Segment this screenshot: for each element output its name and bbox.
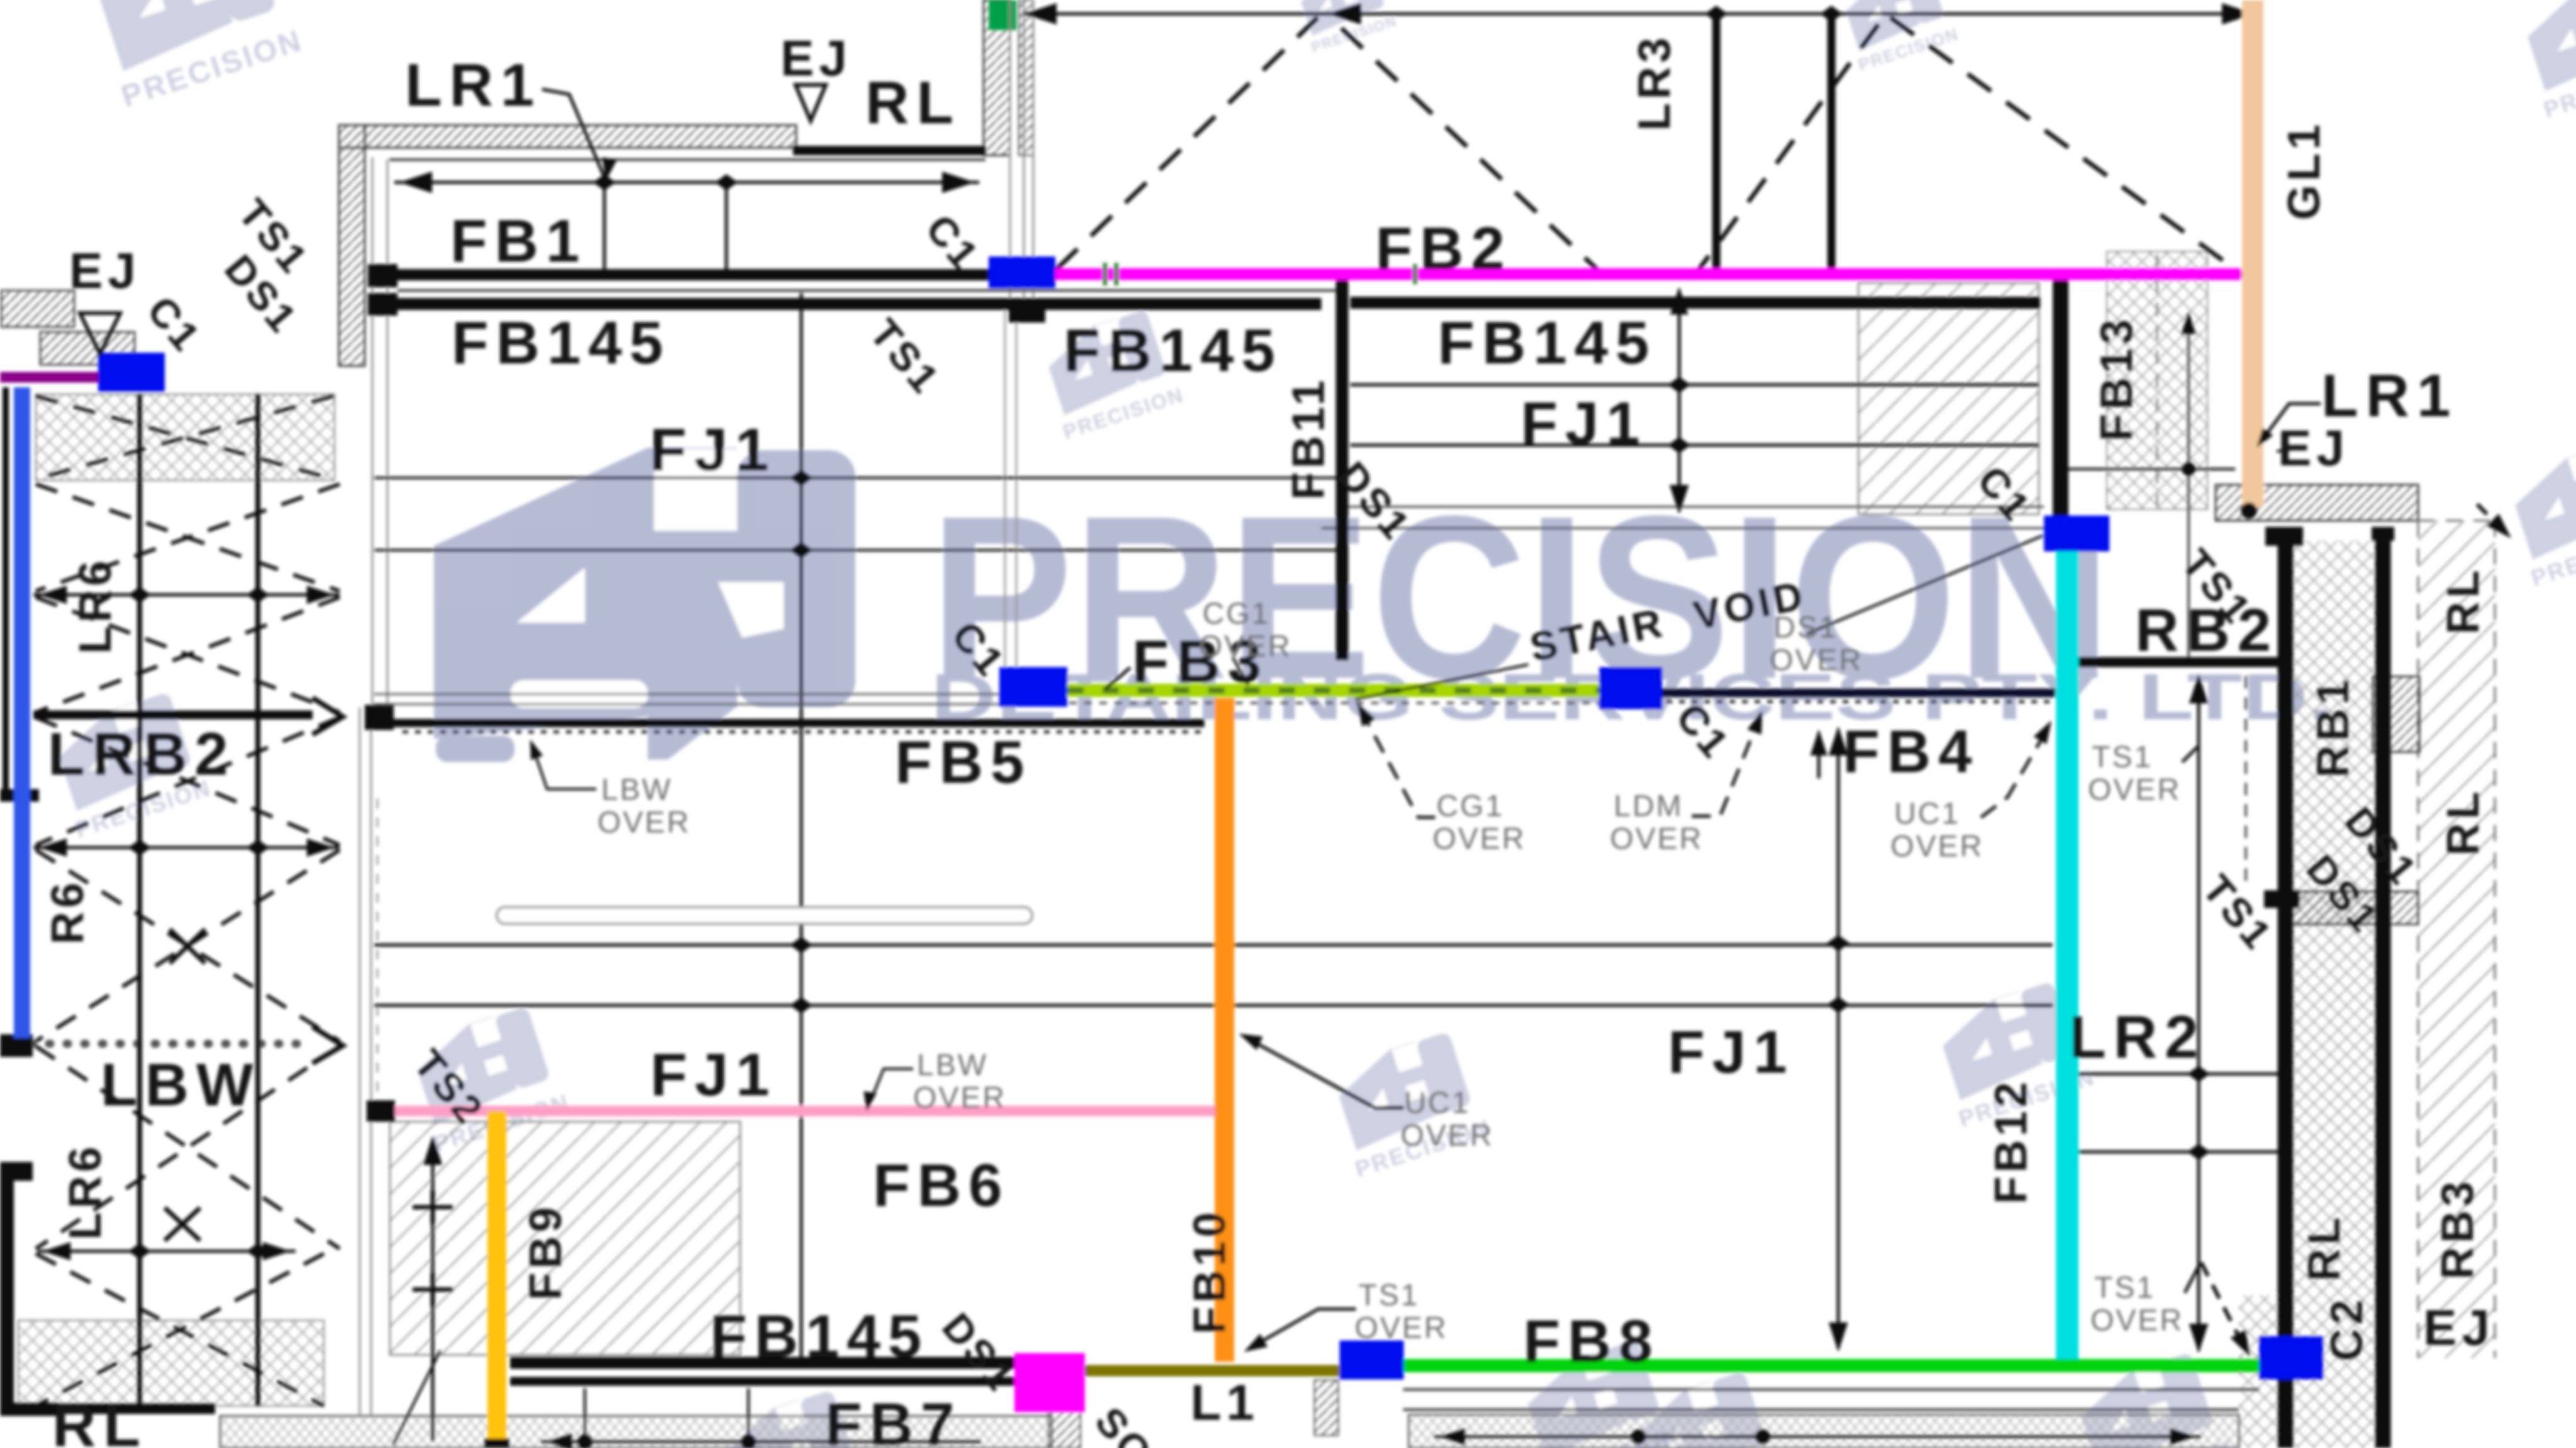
svg-text:CG1: CG1 bbox=[1436, 790, 1504, 823]
svg-text:OVER: OVER bbox=[1199, 630, 1292, 663]
svg-text:OVER: OVER bbox=[1433, 822, 1526, 856]
svg-text:FB1: FB1 bbox=[450, 207, 587, 275]
svg-text:LR1: LR1 bbox=[405, 52, 541, 119]
svg-text:LBW: LBW bbox=[917, 1049, 988, 1082]
svg-text:FB11: FB11 bbox=[1284, 377, 1334, 500]
svg-text:OVER: OVER bbox=[2090, 1304, 2184, 1337]
svg-text:LRB2: LRB2 bbox=[48, 721, 236, 788]
svg-text:EJ: EJ bbox=[69, 243, 141, 299]
svg-text:EJ: EJ bbox=[2278, 420, 2350, 476]
svg-text:FJ1: FJ1 bbox=[1668, 1019, 1794, 1086]
svg-text:OVER: OVER bbox=[2088, 773, 2181, 807]
svg-text:FB12: FB12 bbox=[1986, 1078, 2036, 1204]
svg-text:RL: RL bbox=[52, 1392, 148, 1448]
svg-text:GL1: GL1 bbox=[2279, 121, 2329, 220]
svg-text:LR6: LR6 bbox=[70, 557, 121, 654]
svg-text:FJ1: FJ1 bbox=[650, 416, 776, 484]
svg-text:LR2: LR2 bbox=[2069, 1003, 2206, 1071]
svg-text:FB145: FB145 bbox=[1063, 317, 1282, 384]
svg-text:TS1: TS1 bbox=[1358, 1279, 1419, 1312]
svg-text:OVER: OVER bbox=[1770, 644, 1863, 677]
svg-text:FB4: FB4 bbox=[1843, 718, 1979, 785]
svg-text:FJ1: FJ1 bbox=[1521, 390, 1647, 457]
svg-text:FB10: FB10 bbox=[1185, 1208, 1235, 1334]
svg-text:R6: R6 bbox=[43, 879, 93, 944]
svg-text:RL: RL bbox=[2438, 566, 2489, 634]
svg-text:OVER: OVER bbox=[1610, 822, 1703, 856]
svg-text:FB145: FB145 bbox=[710, 1303, 929, 1370]
svg-text:C2: C2 bbox=[2322, 1296, 2372, 1361]
svg-text:FB145: FB145 bbox=[1438, 309, 1657, 377]
svg-text:RL: RL bbox=[865, 69, 961, 136]
svg-text:EJ: EJ bbox=[780, 30, 852, 86]
svg-text:OVER: OVER bbox=[913, 1081, 1006, 1115]
svg-text:RL: RL bbox=[2438, 788, 2489, 856]
svg-text:UC1: UC1 bbox=[1404, 1086, 1470, 1120]
svg-text:FB13: FB13 bbox=[2092, 316, 2142, 441]
svg-text:OVER: OVER bbox=[1890, 830, 1984, 863]
svg-text:LR6: LR6 bbox=[60, 1143, 111, 1240]
svg-text:DS1: DS1 bbox=[1774, 611, 1838, 644]
svg-text:OVER: OVER bbox=[597, 806, 691, 839]
svg-text:LR3: LR3 bbox=[1629, 34, 1680, 131]
svg-text:CG1: CG1 bbox=[1202, 597, 1270, 631]
svg-text:FB2: FB2 bbox=[1375, 215, 1512, 282]
svg-text:FB145: FB145 bbox=[452, 309, 670, 377]
svg-text:FB5: FB5 bbox=[895, 729, 1031, 796]
svg-text:OVER: OVER bbox=[1355, 1312, 1448, 1345]
svg-text:LDM: LDM bbox=[1614, 790, 1683, 823]
svg-text:RL: RL bbox=[2299, 1213, 2350, 1281]
svg-text:TS1: TS1 bbox=[2094, 1271, 2155, 1305]
svg-text:FB7: FB7 bbox=[825, 1391, 962, 1448]
svg-text:FB6: FB6 bbox=[873, 1152, 1009, 1219]
svg-text:OVER: OVER bbox=[1401, 1119, 1494, 1152]
svg-text:FJ1: FJ1 bbox=[650, 1041, 777, 1108]
svg-text:UC1: UC1 bbox=[1894, 797, 1960, 831]
svg-text:LR1: LR1 bbox=[2321, 362, 2458, 429]
svg-text:RB1: RB1 bbox=[2308, 676, 2358, 778]
svg-text:L1: L1 bbox=[1191, 1374, 1259, 1430]
svg-text:LBW: LBW bbox=[101, 1051, 261, 1119]
svg-text:FB8: FB8 bbox=[1523, 1308, 1660, 1375]
svg-text:EJ: EJ bbox=[2423, 1300, 2495, 1356]
svg-text:TS1: TS1 bbox=[2092, 741, 2153, 774]
svg-text:FB9: FB9 bbox=[521, 1203, 571, 1300]
svg-text:RB3: RB3 bbox=[2433, 1178, 2483, 1279]
svg-text:LBW: LBW bbox=[601, 773, 672, 807]
